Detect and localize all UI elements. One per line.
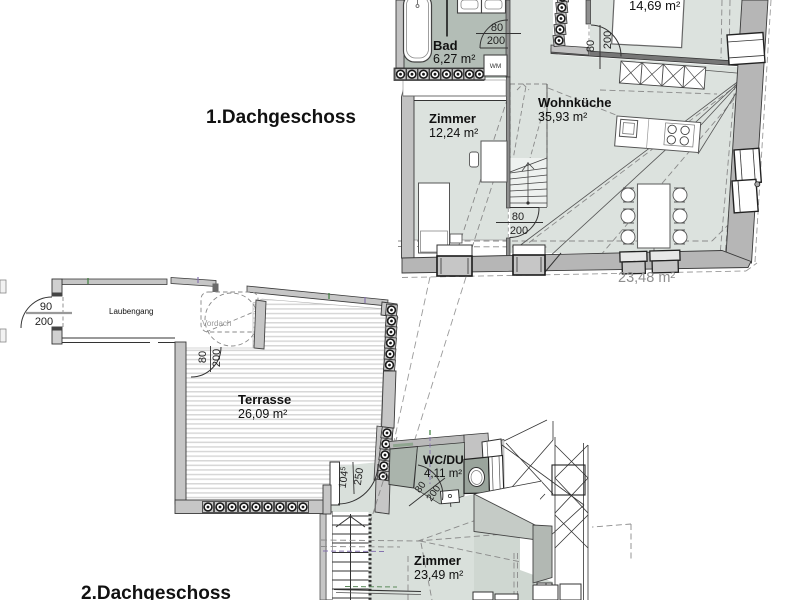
svg-text:23,48 m²: 23,48 m² xyxy=(618,270,675,286)
svg-text:80: 80 xyxy=(512,211,524,223)
svg-text:Bad: Bad xyxy=(433,38,458,53)
svg-text:200: 200 xyxy=(487,35,505,47)
svg-text:6,27 m²: 6,27 m² xyxy=(433,52,475,66)
svg-text:Laubengang: Laubengang xyxy=(109,307,154,316)
svg-text:200: 200 xyxy=(602,31,614,49)
svg-text:Zimmer: Zimmer xyxy=(429,111,476,126)
svg-text:200: 200 xyxy=(35,316,53,328)
svg-text:250: 250 xyxy=(352,467,366,486)
svg-text:12,24 m²: 12,24 m² xyxy=(429,126,478,140)
svg-text:35,93 m²: 35,93 m² xyxy=(538,110,587,124)
svg-text:80: 80 xyxy=(197,351,209,363)
svg-text:2.Dachgeschoss: 2.Dachgeschoss xyxy=(81,583,231,600)
svg-text:Wohnküche: Wohnküche xyxy=(538,95,611,110)
svg-text:80: 80 xyxy=(585,40,597,52)
svg-text:1.Dachgeschoss: 1.Dachgeschoss xyxy=(206,107,356,128)
svg-text:80: 80 xyxy=(491,22,503,34)
svg-text:200: 200 xyxy=(510,225,528,237)
svg-text:23,49 m²: 23,49 m² xyxy=(414,568,463,582)
svg-text:26,09 m²: 26,09 m² xyxy=(238,407,287,421)
svg-text:Terrasse: Terrasse xyxy=(238,392,291,407)
svg-text:Vordach: Vordach xyxy=(202,319,231,328)
svg-text:14,69 m²: 14,69 m² xyxy=(629,0,681,13)
svg-text:WC/DU: WC/DU xyxy=(423,453,464,467)
svg-text:Zimmer: Zimmer xyxy=(414,553,461,568)
svg-text:WM: WM xyxy=(490,63,502,70)
svg-text:90: 90 xyxy=(40,301,52,313)
svg-text:200: 200 xyxy=(211,349,223,367)
